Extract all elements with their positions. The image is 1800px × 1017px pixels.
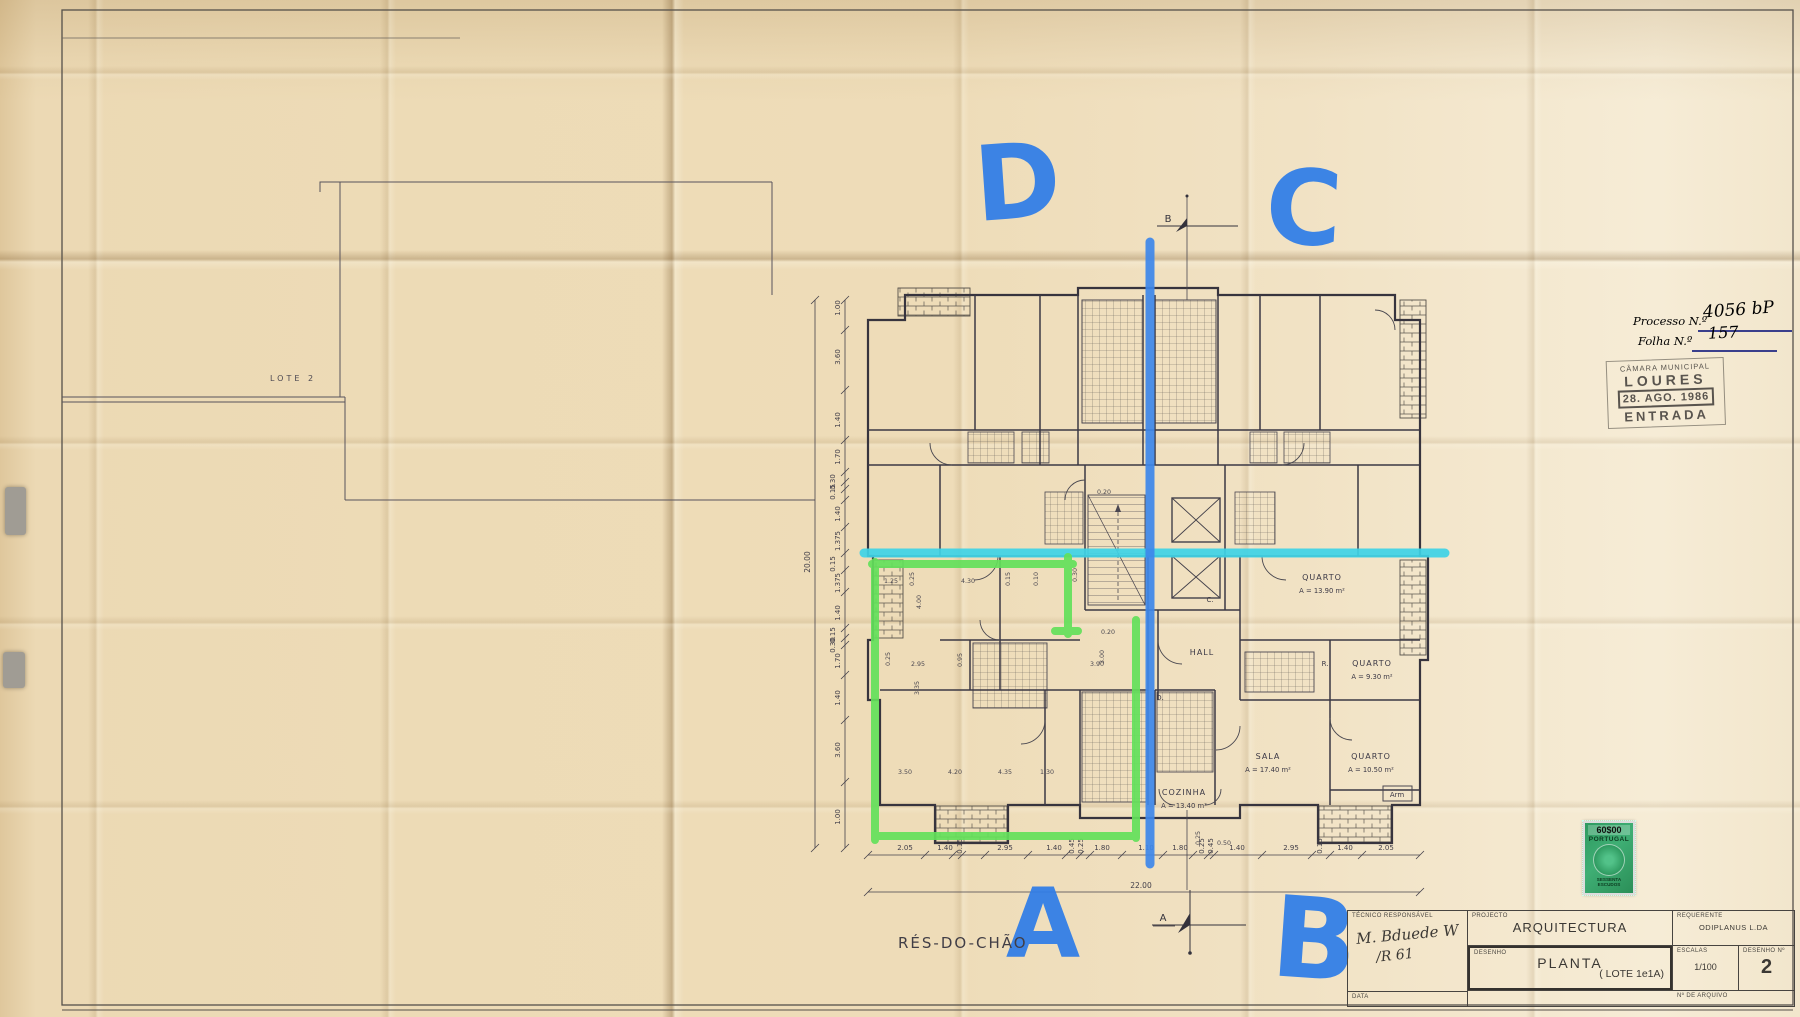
svg-text:3.50: 3.50 <box>898 769 912 776</box>
svg-text:0.10: 0.10 <box>1033 572 1040 586</box>
svg-text:1.375: 1.375 <box>834 573 842 593</box>
room-area: A = 10.50 m² <box>1348 766 1394 774</box>
balcony-brick-hatch <box>898 288 970 316</box>
site-lot-label: LOTE 2 <box>270 374 316 383</box>
titleblock-arquivo-cell: Nº DE ARQUIVO <box>1673 991 1794 1006</box>
svg-text:0.30: 0.30 <box>829 637 837 653</box>
processo-label: Processo N.º <box>1633 314 1707 328</box>
svg-text:1.30: 1.30 <box>1040 769 1054 776</box>
svg-text:1.70: 1.70 <box>834 449 842 465</box>
room-label: SALA <box>1256 752 1281 761</box>
svg-text:1.40: 1.40 <box>1337 844 1353 852</box>
svg-text:1.40: 1.40 <box>834 506 842 522</box>
titleblock-numero-cell: DESENHO Nº 2 <box>1739 946 1794 991</box>
entry-stamp: CÂMARA MUNICIPAL LOURES 28. AGO. 1986 EN… <box>1606 357 1727 439</box>
svg-text:1.00: 1.00 <box>834 300 842 316</box>
svg-text:0.15: 0.15 <box>956 838 964 854</box>
svg-text:3.90: 3.90 <box>1090 661 1104 668</box>
svg-text:0.15: 0.15 <box>829 556 837 572</box>
svg-text:4.00: 4.00 <box>916 595 923 609</box>
room-label: Arm <box>1390 791 1405 799</box>
svg-text:1.40: 1.40 <box>1229 844 1245 852</box>
marker-letter-d: D <box>970 118 1065 246</box>
svg-text:2.95: 2.95 <box>1283 844 1299 852</box>
tecnico-label: TÉCNICO RESPONSÁVEL <box>1348 911 1467 919</box>
svg-text:0.25: 0.25 <box>909 572 916 586</box>
entry-stamp-date: 28. AGO. 1986 <box>1618 387 1715 408</box>
floor-plan-drawing: B A QUARTO A = 13.90 m² QUARTO A = 9.30 … <box>0 0 1800 1017</box>
svg-text:2.05: 2.05 <box>1378 844 1394 852</box>
svg-text:3.35: 3.35 <box>914 681 921 695</box>
titleblock-tecnico-cell: TÉCNICO RESPONSÁVEL M. Bduede W /R 61 <box>1348 911 1468 991</box>
balcony-brick-hatch <box>1400 300 1426 418</box>
titleblock-projecto-cell: PROJECTO ARQUITECTURA <box>1468 911 1673 946</box>
room-label: COZINHA <box>1162 788 1206 797</box>
numero-value: 2 <box>1739 956 1794 979</box>
svg-text:0.15: 0.15 <box>1316 838 1324 854</box>
marker-letter-a: A <box>1006 868 1080 980</box>
svg-text:1.40: 1.40 <box>1046 844 1062 852</box>
svg-text:1.80: 1.80 <box>1094 844 1110 852</box>
sheet-border <box>62 10 1793 1010</box>
floor-label: RÉS-DO-CHÃO <box>898 934 1028 952</box>
revenue-stamp-denomination2: ESCUDOS <box>1585 882 1633 887</box>
elevator-shafts <box>1172 498 1220 598</box>
room-label: QUARTO <box>1302 573 1342 582</box>
revenue-stamp-ornament <box>1593 844 1625 876</box>
svg-text:0.15: 0.15 <box>829 484 837 500</box>
svg-text:0.95: 0.95 <box>957 653 964 667</box>
desenho-heavy-box: DESENHO PLANTA ( LOTE 1e1A) <box>1468 946 1672 990</box>
section-label-a: A <box>1160 913 1167 924</box>
plan-mark-d: D. <box>1156 694 1164 702</box>
svg-text:2.95: 2.95 <box>997 844 1013 852</box>
svg-text:1.80: 1.80 <box>1172 844 1188 852</box>
requerente-value: ODIPLANUS L.DA <box>1673 923 1794 932</box>
svg-text:1.40: 1.40 <box>937 844 953 852</box>
left-dimensions: 1.00 3.60 1.40 1.70 0.30 0.15 1.40 1.375… <box>803 300 842 825</box>
marker-letter-c: C <box>1263 145 1346 271</box>
svg-text:1.40: 1.40 <box>834 690 842 706</box>
svg-text:1.40: 1.40 <box>834 605 842 621</box>
svg-text:2.95: 2.95 <box>911 661 925 668</box>
room-label: QUARTO <box>1352 659 1392 668</box>
room-area: A = 13.90 m² <box>1299 587 1345 595</box>
drawing-sheet: B A QUARTO A = 13.90 m² QUARTO A = 9.30 … <box>0 0 1800 1017</box>
titleblock-requerente-cell: REQUERENTE ODIPLANUS L.DA <box>1673 911 1794 946</box>
svg-text:0.25: 0.25 <box>1195 831 1202 845</box>
revenue-stamp: 60$00 PORTUGAL SESSENTA ESCUDOS <box>1583 821 1635 895</box>
svg-text:4.30: 4.30 <box>961 578 975 585</box>
svg-text:0.50: 0.50 <box>1217 840 1231 847</box>
data-label: DATA <box>1348 992 1467 1000</box>
svg-text:4.20: 4.20 <box>948 769 962 776</box>
svg-text:1.40: 1.40 <box>834 412 842 428</box>
svg-text:4.35: 4.35 <box>998 769 1012 776</box>
title-block: TÉCNICO RESPONSÁVEL M. Bduede W /R 61 PR… <box>1347 910 1795 1007</box>
site-plan-outline <box>62 182 815 500</box>
requerente-label: REQUERENTE <box>1673 911 1794 919</box>
room-area: A = 9.30 m² <box>1351 673 1393 681</box>
section-label-b: B <box>1165 214 1172 225</box>
titleblock-data-cell: DATA <box>1348 991 1468 1006</box>
revenue-stamp-country: PORTUGAL <box>1585 836 1633 843</box>
folha-label: Folha N.º <box>1638 334 1692 348</box>
revenue-stamp-value: 60$00 <box>1588 825 1630 835</box>
svg-text:0.25: 0.25 <box>885 652 892 666</box>
titleblock-escalas-cell: ESCALAS 1/100 <box>1673 946 1739 991</box>
svg-text:3.60: 3.60 <box>834 349 842 365</box>
svg-text:3.60: 3.60 <box>834 742 842 758</box>
folha-value-handwritten: 157 <box>1708 322 1739 343</box>
balcony-brick-hatch <box>1319 806 1391 842</box>
room-area: A = 17.40 m² <box>1245 766 1291 774</box>
svg-text:0.15: 0.15 <box>1005 572 1012 586</box>
escalas-label: ESCALAS <box>1673 946 1738 954</box>
plan-mark-c: C. <box>1206 596 1213 604</box>
plan-mark-r: R. <box>1322 660 1329 668</box>
svg-text:0.20: 0.20 <box>1097 489 1111 496</box>
svg-text:0.45: 0.45 <box>1068 838 1076 854</box>
escalas-value: 1/100 <box>1673 962 1738 972</box>
titleblock-empty-cell <box>1468 991 1673 1006</box>
section-marker-b: B <box>1157 195 1238 233</box>
svg-text:0.25: 0.25 <box>1077 838 1085 854</box>
room-label: QUARTO <box>1351 752 1391 761</box>
projecto-value: ARQUITECTURA <box>1468 920 1672 935</box>
room-label: HALL <box>1190 648 1214 657</box>
room-area: A = 13.40 m² <box>1161 802 1207 810</box>
left-total: 20.00 <box>803 551 812 573</box>
projecto-label: PROJECTO <box>1468 911 1672 919</box>
numero-label: DESENHO Nº <box>1739 946 1794 954</box>
entry-stamp-line4: ENTRADA <box>1610 406 1722 425</box>
svg-text:1.25: 1.25 <box>884 578 898 585</box>
arquivo-label: Nº DE ARQUIVO <box>1673 991 1794 999</box>
svg-text:1.375: 1.375 <box>834 531 842 551</box>
svg-text:1.00: 1.00 <box>834 809 842 825</box>
svg-text:2.05: 2.05 <box>897 844 913 852</box>
svg-text:0.20: 0.20 <box>1101 629 1115 636</box>
svg-text:0.30: 0.30 <box>1072 568 1079 582</box>
titleblock-desenho-cell: DESENHO PLANTA ( LOTE 1e1A) <box>1468 946 1673 991</box>
svg-text:0.45: 0.45 <box>1207 838 1215 854</box>
svg-text:1.70: 1.70 <box>834 653 842 669</box>
section-marker-a: A <box>1152 890 1246 955</box>
bottom-total: 22.00 <box>1130 881 1152 890</box>
folha-underline <box>1692 350 1777 352</box>
